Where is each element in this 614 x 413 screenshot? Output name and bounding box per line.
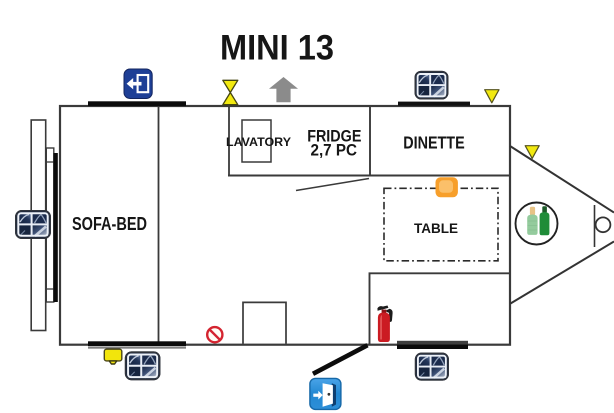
svg-text:DINETTE: DINETTE <box>403 133 465 153</box>
svg-text:SOFA-BED: SOFA-BED <box>72 213 147 234</box>
svg-text:MINI 13: MINI 13 <box>220 29 334 68</box>
svg-text:LAVATORY: LAVATORY <box>226 137 291 149</box>
svg-text:2,7 PC: 2,7 PC <box>311 142 358 160</box>
svg-text:TABLE: TABLE <box>414 221 458 236</box>
